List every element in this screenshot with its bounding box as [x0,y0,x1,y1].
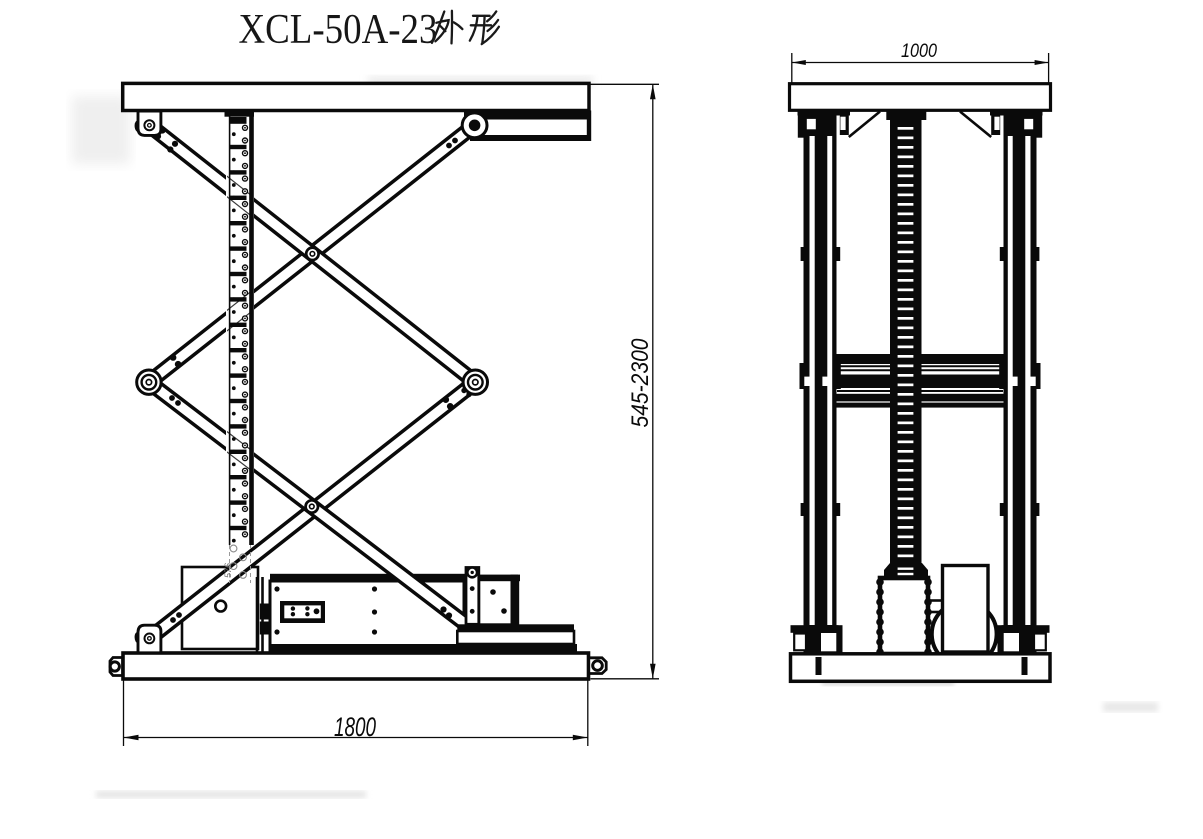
svg-text:1800: 1800 [334,712,376,742]
svg-text:576: 576 [223,563,233,578]
svg-text:545-2300: 545-2300 [627,338,654,428]
svg-text:XCL-50A-23: XCL-50A-23 [239,7,438,53]
svg-text:1000: 1000 [901,41,937,62]
